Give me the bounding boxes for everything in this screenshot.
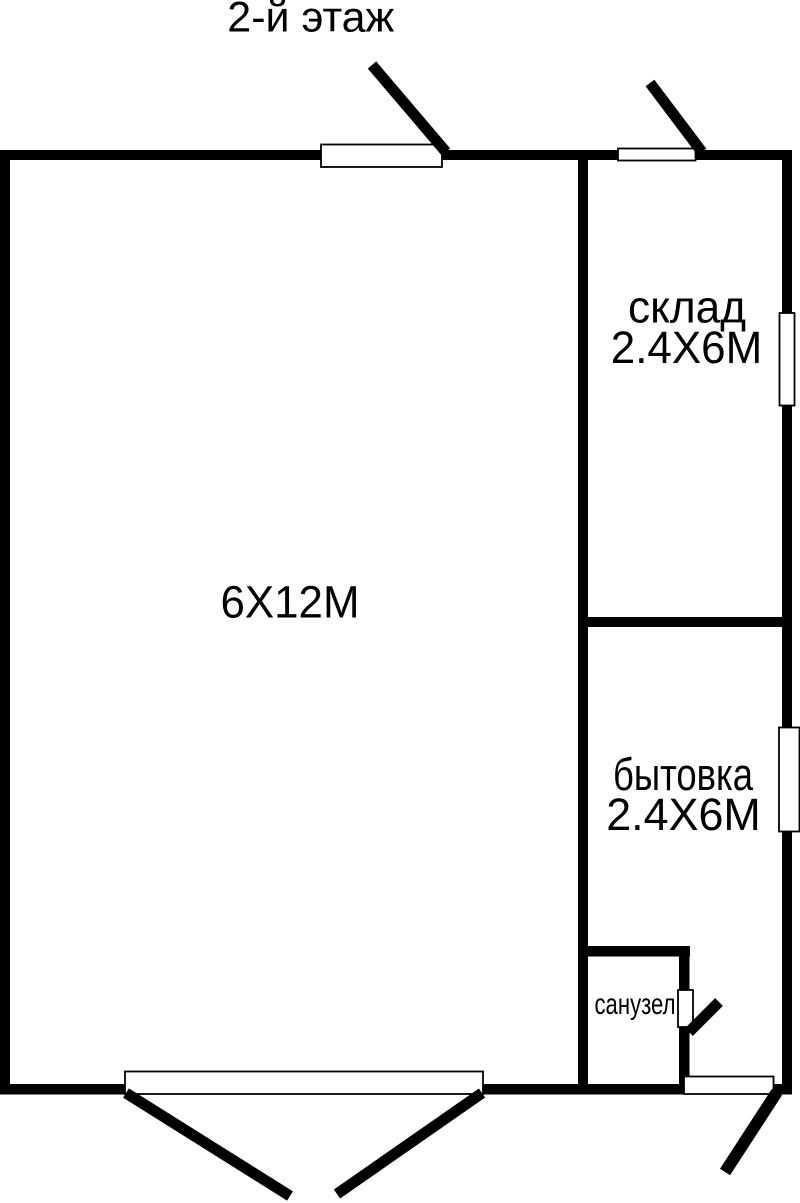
svg-text:6Х12М: 6Х12М	[221, 577, 360, 628]
svg-text:2.4Х6М: 2.4Х6М	[611, 322, 763, 373]
svg-text:2.4Х6М: 2.4Х6М	[606, 789, 761, 840]
svg-text:2-й этаж: 2-й этаж	[227, 0, 394, 42]
svg-text:санузел: санузел	[595, 988, 676, 1021]
